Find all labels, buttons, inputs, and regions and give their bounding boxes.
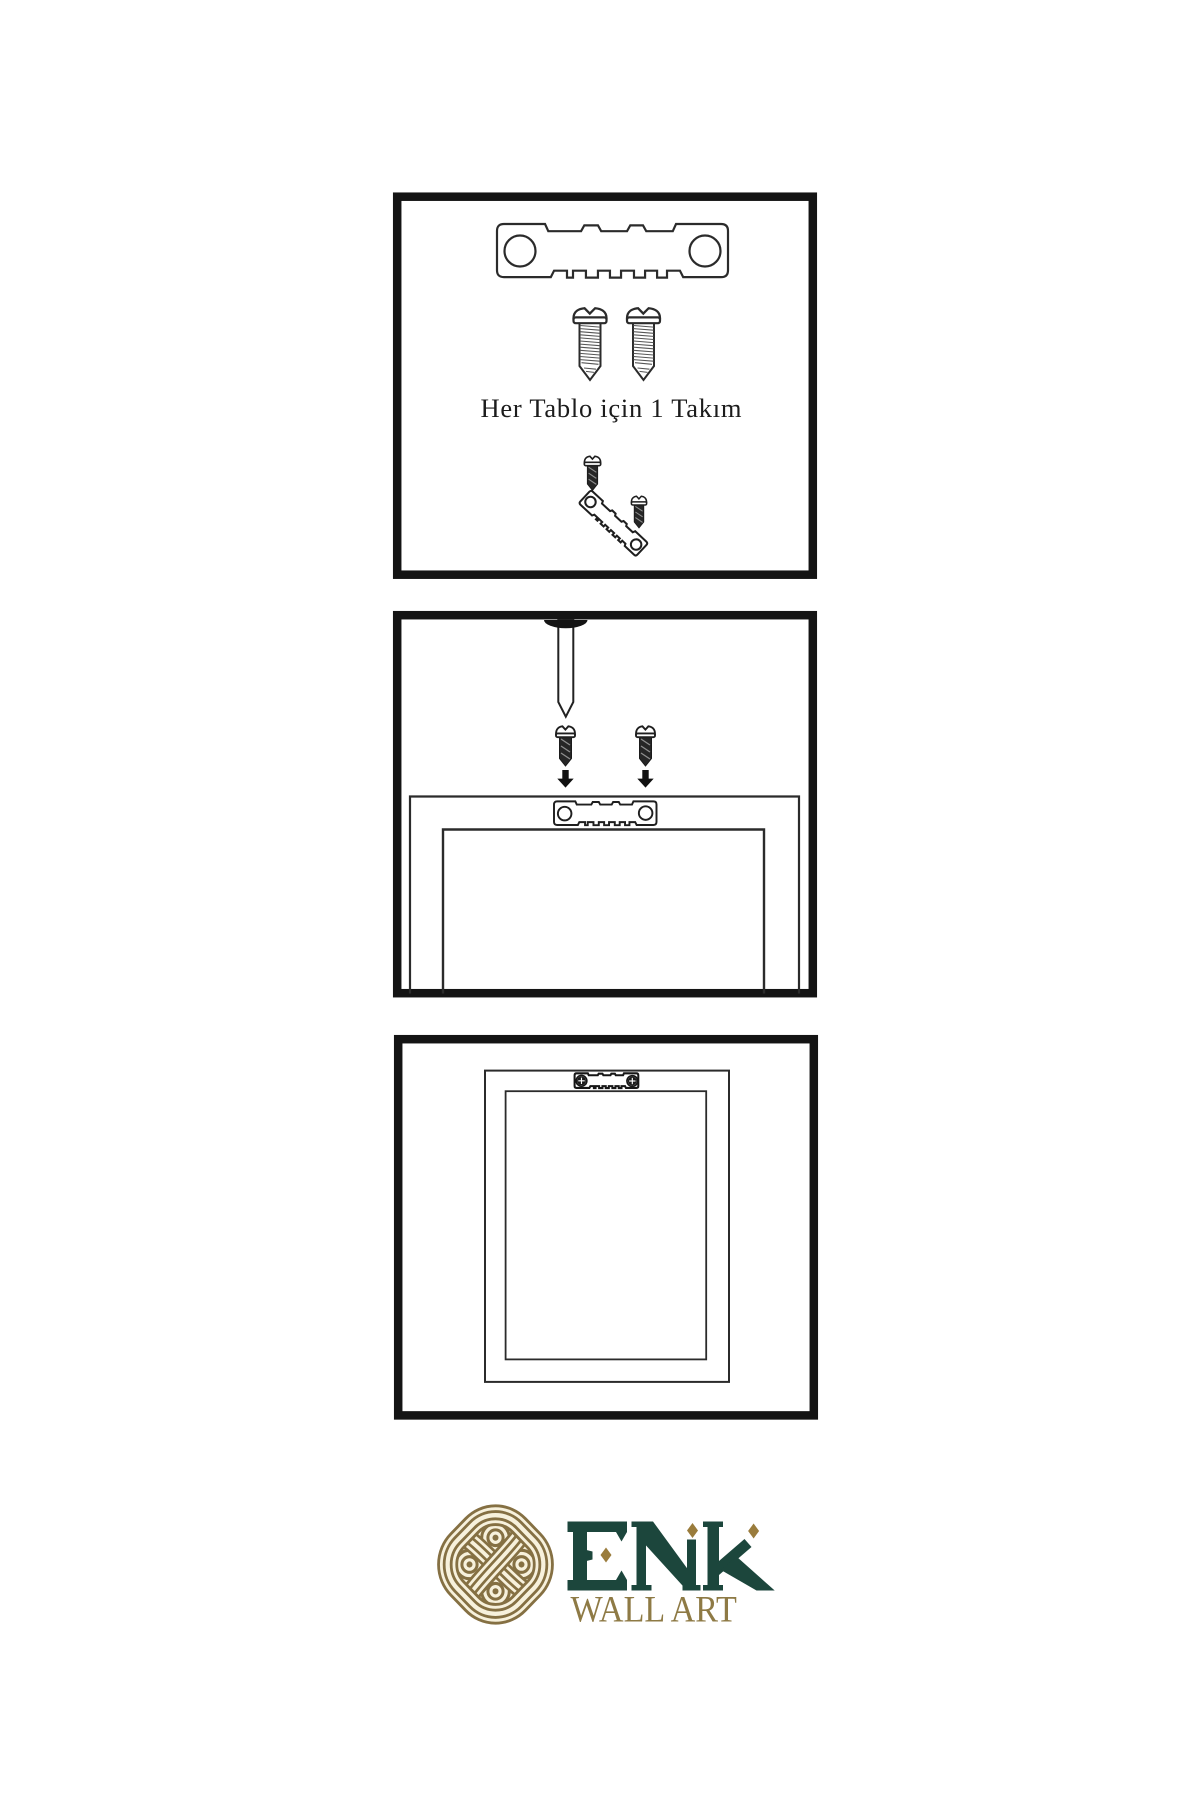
svg-text:Her Tablo için 1 Takım: Her Tablo için 1 Takım (481, 393, 742, 423)
svg-text:WALL ART: WALL ART (571, 1589, 737, 1629)
